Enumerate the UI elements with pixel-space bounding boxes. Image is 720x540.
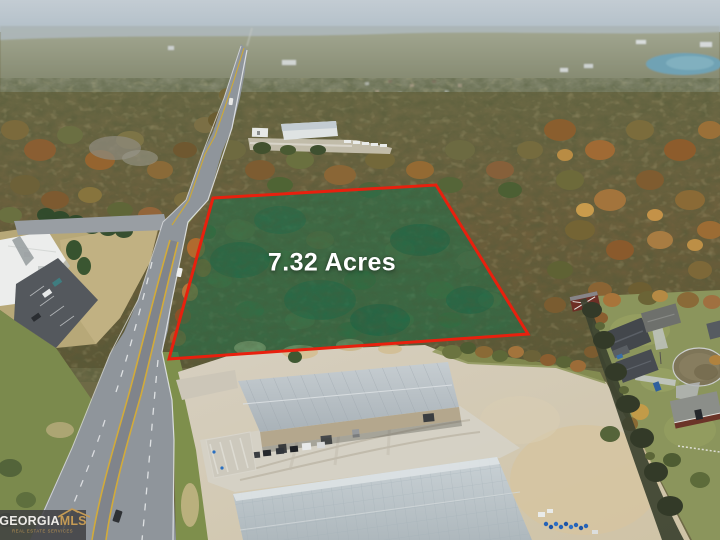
watermark-brand-primary: GEORGIA bbox=[0, 515, 60, 528]
georgia-mls-watermark: GEORGIA MLS REAL ESTATE SERVICES bbox=[0, 510, 86, 540]
acreage-label: 7.32 Acres bbox=[268, 249, 396, 278]
watermark-tagline: REAL ESTATE SERVICES bbox=[13, 529, 74, 534]
roof-icon bbox=[57, 508, 91, 518]
watermark-brand-row: GEORGIA MLS bbox=[0, 515, 87, 528]
screenshot: 7.32 Acres GEORGIA MLS REAL ESTATE SERVI… bbox=[0, 0, 720, 540]
